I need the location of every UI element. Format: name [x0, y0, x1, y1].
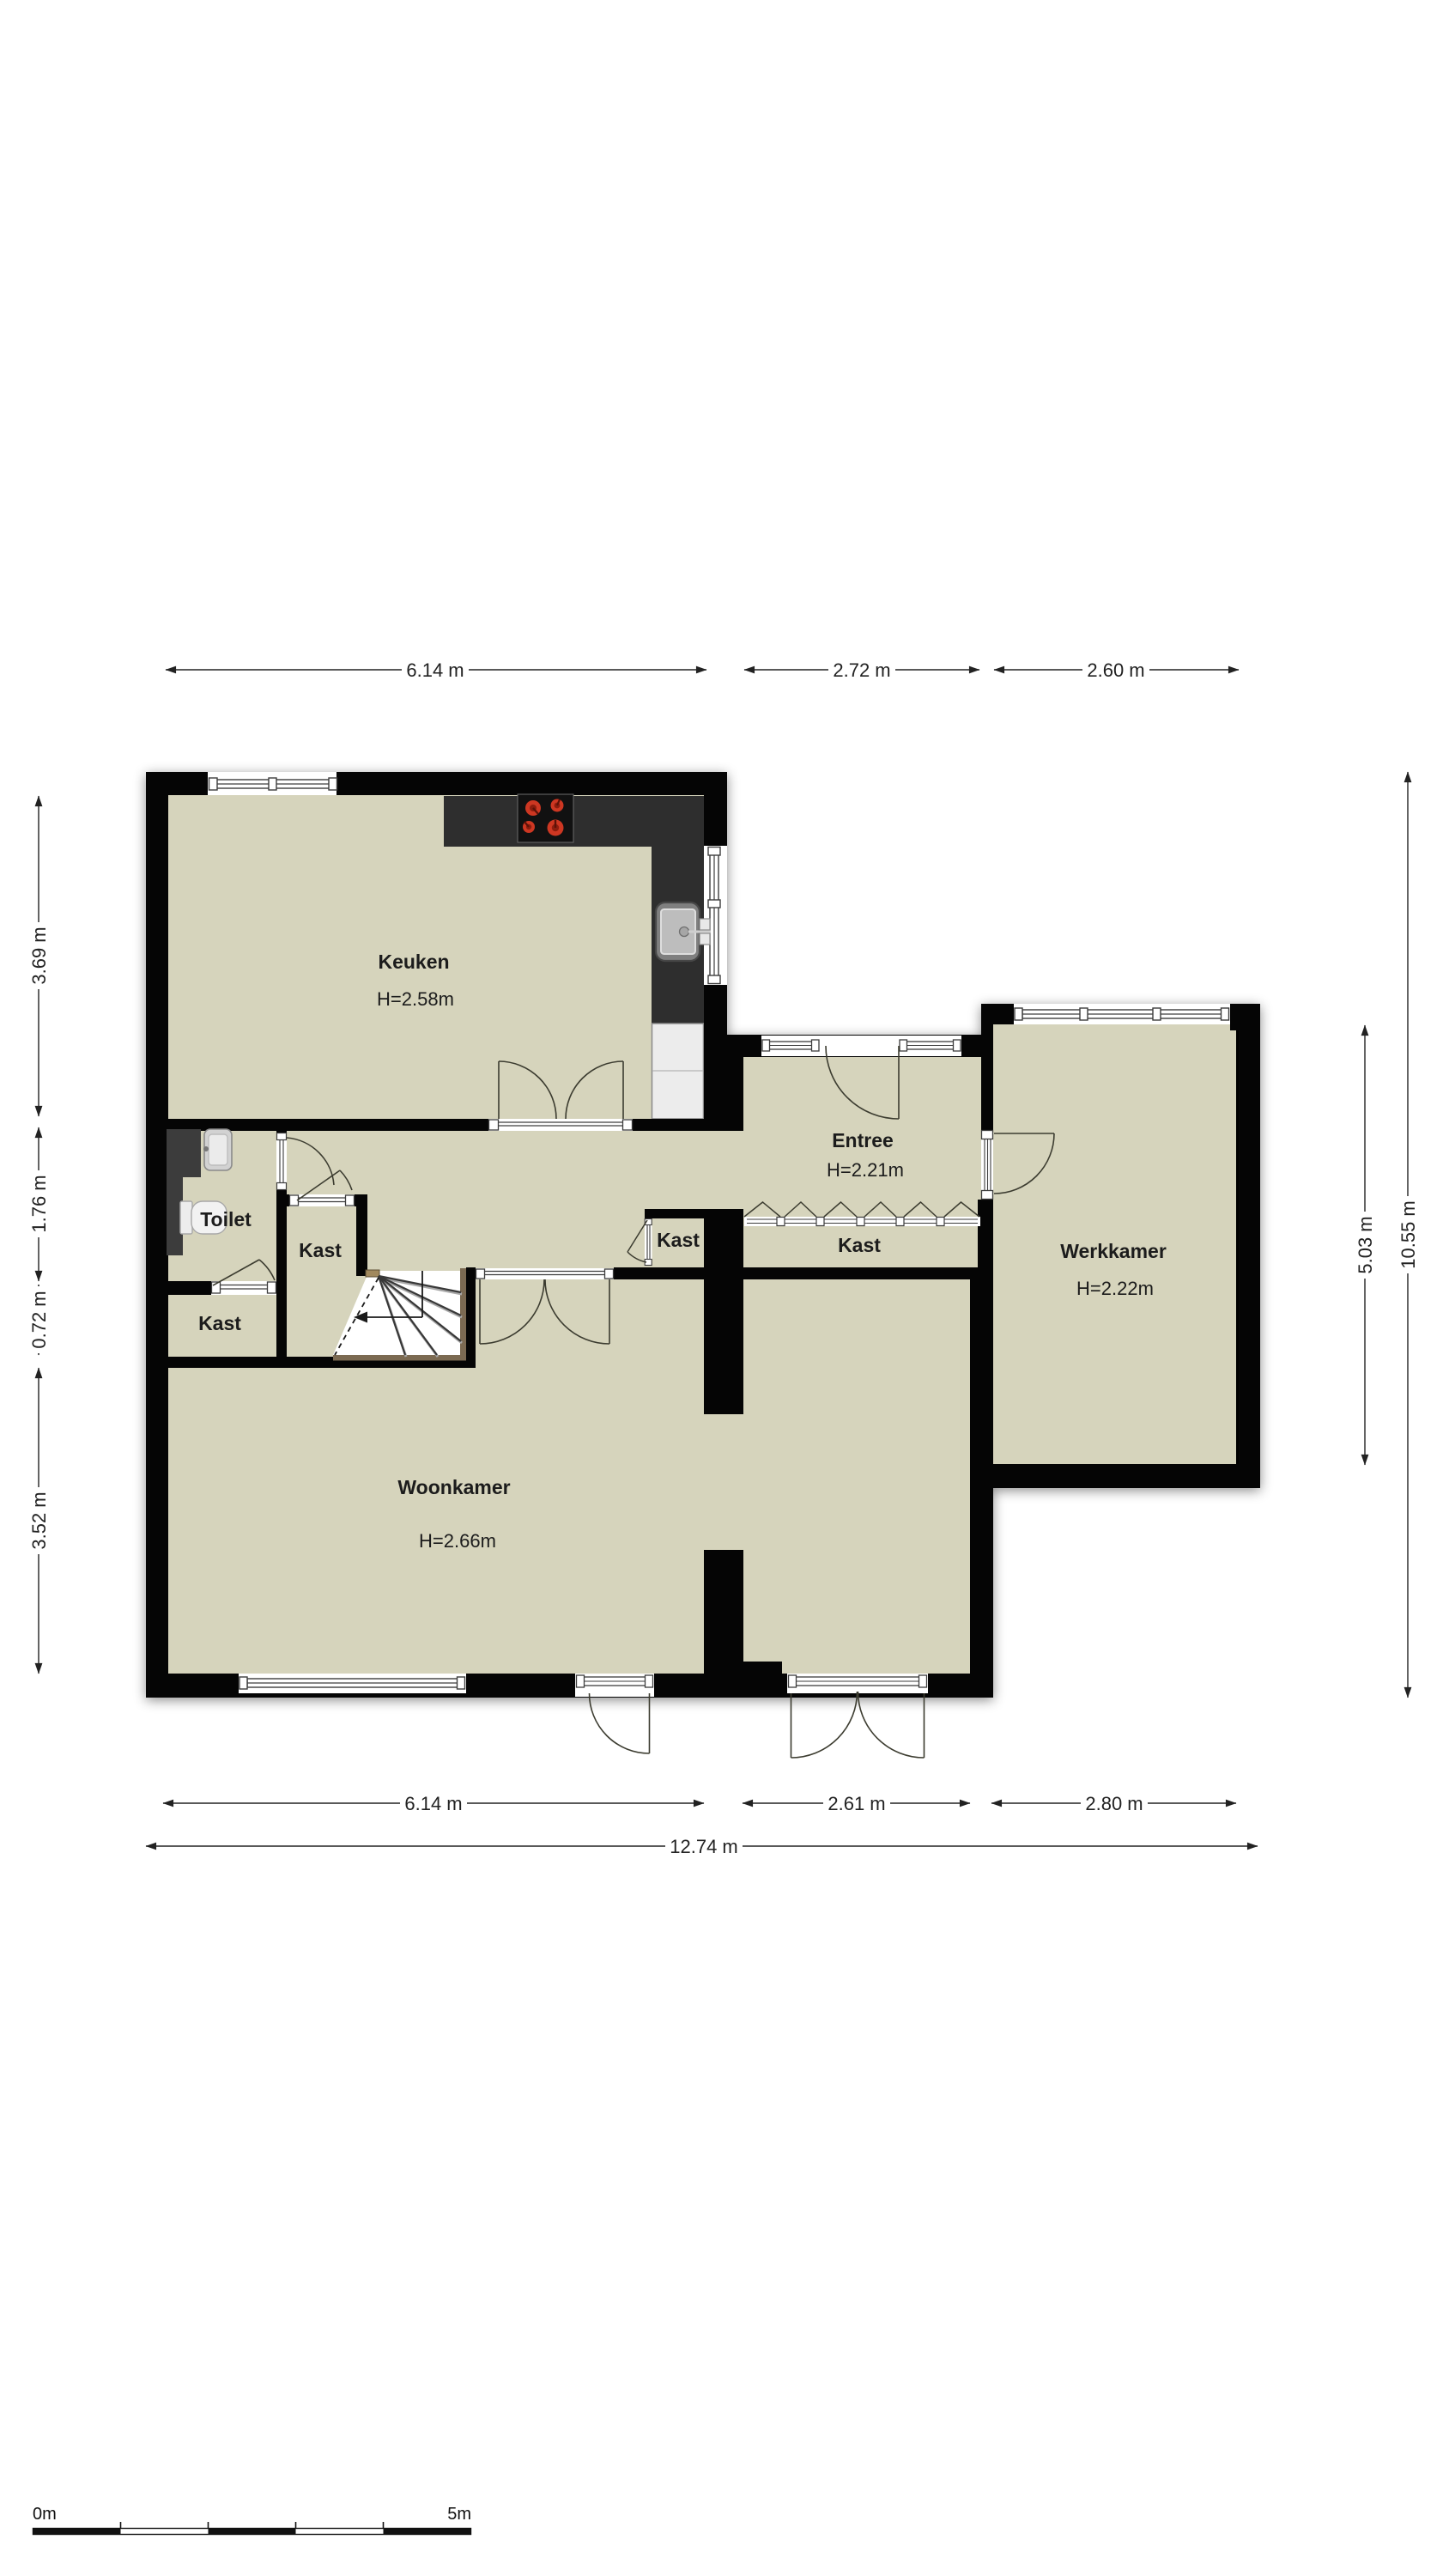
svg-text:6.14 m: 6.14 m	[406, 659, 464, 681]
svg-text:6.14 m: 6.14 m	[404, 1793, 462, 1814]
svg-text:Entree: Entree	[832, 1129, 894, 1151]
svg-text:2.80 m: 2.80 m	[1085, 1793, 1143, 1814]
svg-text:H=2.58m: H=2.58m	[377, 988, 454, 1010]
svg-text:2.72 m: 2.72 m	[833, 659, 890, 681]
svg-text:10.55 m: 10.55 m	[1397, 1200, 1419, 1269]
svg-text:3.69 m: 3.69 m	[28, 927, 50, 984]
svg-text:0m: 0m	[33, 2505, 57, 2524]
svg-text:H=2.22m: H=2.22m	[1076, 1278, 1154, 1299]
svg-text:1.76 m: 1.76 m	[28, 1175, 50, 1232]
svg-text:Kast: Kast	[198, 1312, 241, 1334]
svg-text:5m: 5m	[447, 2505, 471, 2524]
svg-text:0.72 m: 0.72 m	[28, 1291, 50, 1348]
svg-text:12.74 m: 12.74 m	[670, 1836, 738, 1857]
svg-text:Kast: Kast	[299, 1239, 342, 1261]
svg-text:Werkkamer: Werkkamer	[1060, 1240, 1167, 1262]
svg-text:Keuken: Keuken	[378, 951, 449, 973]
svg-text:Kast: Kast	[838, 1234, 881, 1256]
svg-text:H=2.21m: H=2.21m	[827, 1159, 904, 1181]
svg-text:Kast: Kast	[657, 1229, 700, 1251]
svg-text:5.03 m: 5.03 m	[1355, 1216, 1376, 1273]
svg-text:2.61 m: 2.61 m	[828, 1793, 885, 1814]
svg-text:3.52 m: 3.52 m	[28, 1492, 50, 1549]
svg-text:Toilet: Toilet	[200, 1208, 252, 1230]
svg-text:Woonkamer: Woonkamer	[397, 1476, 510, 1498]
svg-text:H=2.66m: H=2.66m	[419, 1530, 496, 1552]
svg-text:2.60 m: 2.60 m	[1087, 659, 1144, 681]
